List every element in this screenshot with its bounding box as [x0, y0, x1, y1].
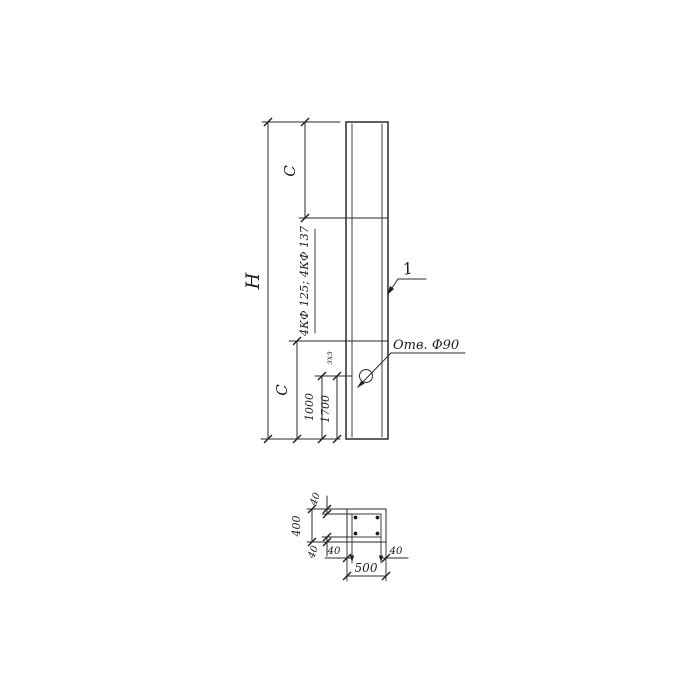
cover-left-arrowhead — [350, 556, 354, 563]
hole-circle — [360, 370, 373, 383]
series-note-text: 4КФ 125; 4КФ 137 — [297, 225, 311, 337]
dim-label-h: H — [242, 272, 264, 290]
dimension-top-segment: C — [281, 118, 309, 222]
dim-label-cover-left: 40 — [327, 546, 341, 557]
section-height-dimensions: 400 40 40 — [290, 491, 352, 561]
rebar-dot — [354, 516, 358, 520]
section-outline — [347, 509, 386, 542]
dim-label-c-top: C — [281, 165, 299, 177]
dimension-bottom-segment: C — [273, 337, 301, 443]
column-outline — [346, 122, 388, 439]
dim-label-400: 400 — [290, 516, 303, 538]
rebar-dot — [376, 532, 380, 536]
dimension-overall-height: H — [242, 118, 272, 443]
dim-label-cover-top: 40 — [308, 491, 323, 508]
dim-label-cover-right: 40 — [389, 546, 403, 557]
dim-label-500: 500 — [355, 561, 378, 575]
section-view: 400 40 40 40 40 — [290, 491, 408, 581]
elevation-view: H C C 1000 1700 — [242, 118, 465, 443]
hole-note: Отв. Ф90 — [357, 338, 465, 388]
section-width-dimensions: 40 40 500 — [325, 537, 408, 581]
item-callout: 1 — [387, 258, 426, 295]
drawing-sheet: H C C 1000 1700 — [0, 0, 700, 700]
dim-label-cover-bottom: 40 — [306, 544, 321, 561]
rebar-dot — [376, 516, 380, 520]
dim-label-c-bottom: C — [273, 384, 291, 396]
callout-label: 1 — [401, 258, 415, 279]
small-note-text: зхз — [325, 351, 334, 364]
column-drawing: H C C 1000 1700 — [0, 0, 700, 700]
hole-note-text: Отв. Ф90 — [393, 338, 459, 353]
rebar-dot — [354, 532, 358, 536]
dim-label-1000: 1000 — [303, 393, 316, 421]
series-note: 4КФ 125; 4КФ 137 — [297, 225, 315, 337]
dim-label-1700: 1700 — [319, 395, 332, 423]
